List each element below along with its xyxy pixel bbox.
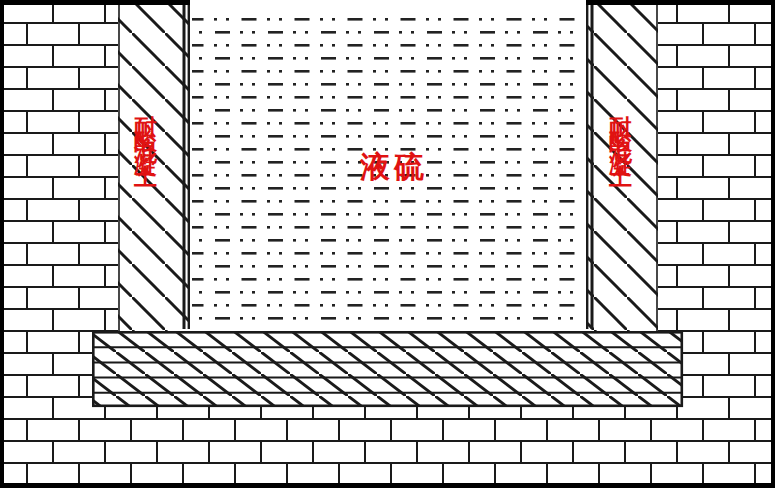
right-concrete-column — [586, 5, 658, 331]
sulfur-pit-cross-section-diagram: 液硫 耐酸混凝土 耐酸混凝土 — [0, 0, 775, 488]
bottom-border — [0, 483, 775, 488]
right-column-material-label: 耐酸混凝土 — [609, 98, 632, 158]
diagram-drawing — [0, 0, 775, 488]
right-brick-wall — [657, 5, 771, 483]
bottom-brick-base — [118, 407, 657, 483]
right-border — [771, 0, 775, 488]
left-concrete-column — [118, 5, 190, 331]
left-border — [0, 0, 4, 488]
bottom-slab — [92, 331, 683, 407]
liquid-sulfur-label: 液硫 — [360, 152, 428, 182]
left-brick-wall — [4, 5, 118, 483]
top-border-right — [586, 0, 775, 5]
top-border-left — [0, 0, 190, 5]
left-column-material-label: 耐酸混凝土 — [134, 98, 157, 158]
